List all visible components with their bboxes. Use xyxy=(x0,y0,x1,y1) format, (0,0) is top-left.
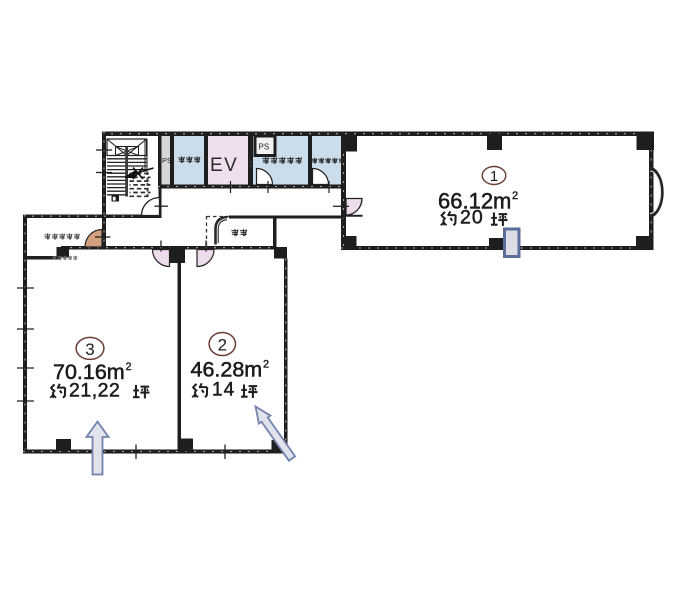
svg-text:2: 2 xyxy=(512,190,518,202)
svg-text:20: 20 xyxy=(460,207,484,229)
svg-text:3: 3 xyxy=(85,340,94,359)
svg-text:2: 2 xyxy=(263,359,269,371)
svg-text:46.28m: 46.28m xyxy=(191,358,263,382)
svg-text:21,22: 21,22 xyxy=(69,380,120,402)
svg-text:1: 1 xyxy=(490,168,498,185)
svg-text:PS: PS xyxy=(259,143,270,152)
svg-text:2: 2 xyxy=(218,336,227,355)
svg-text:PS: PS xyxy=(162,156,172,165)
svg-text:14: 14 xyxy=(212,380,235,401)
svg-text:2: 2 xyxy=(126,361,132,373)
svg-text:EV: EV xyxy=(210,155,238,176)
